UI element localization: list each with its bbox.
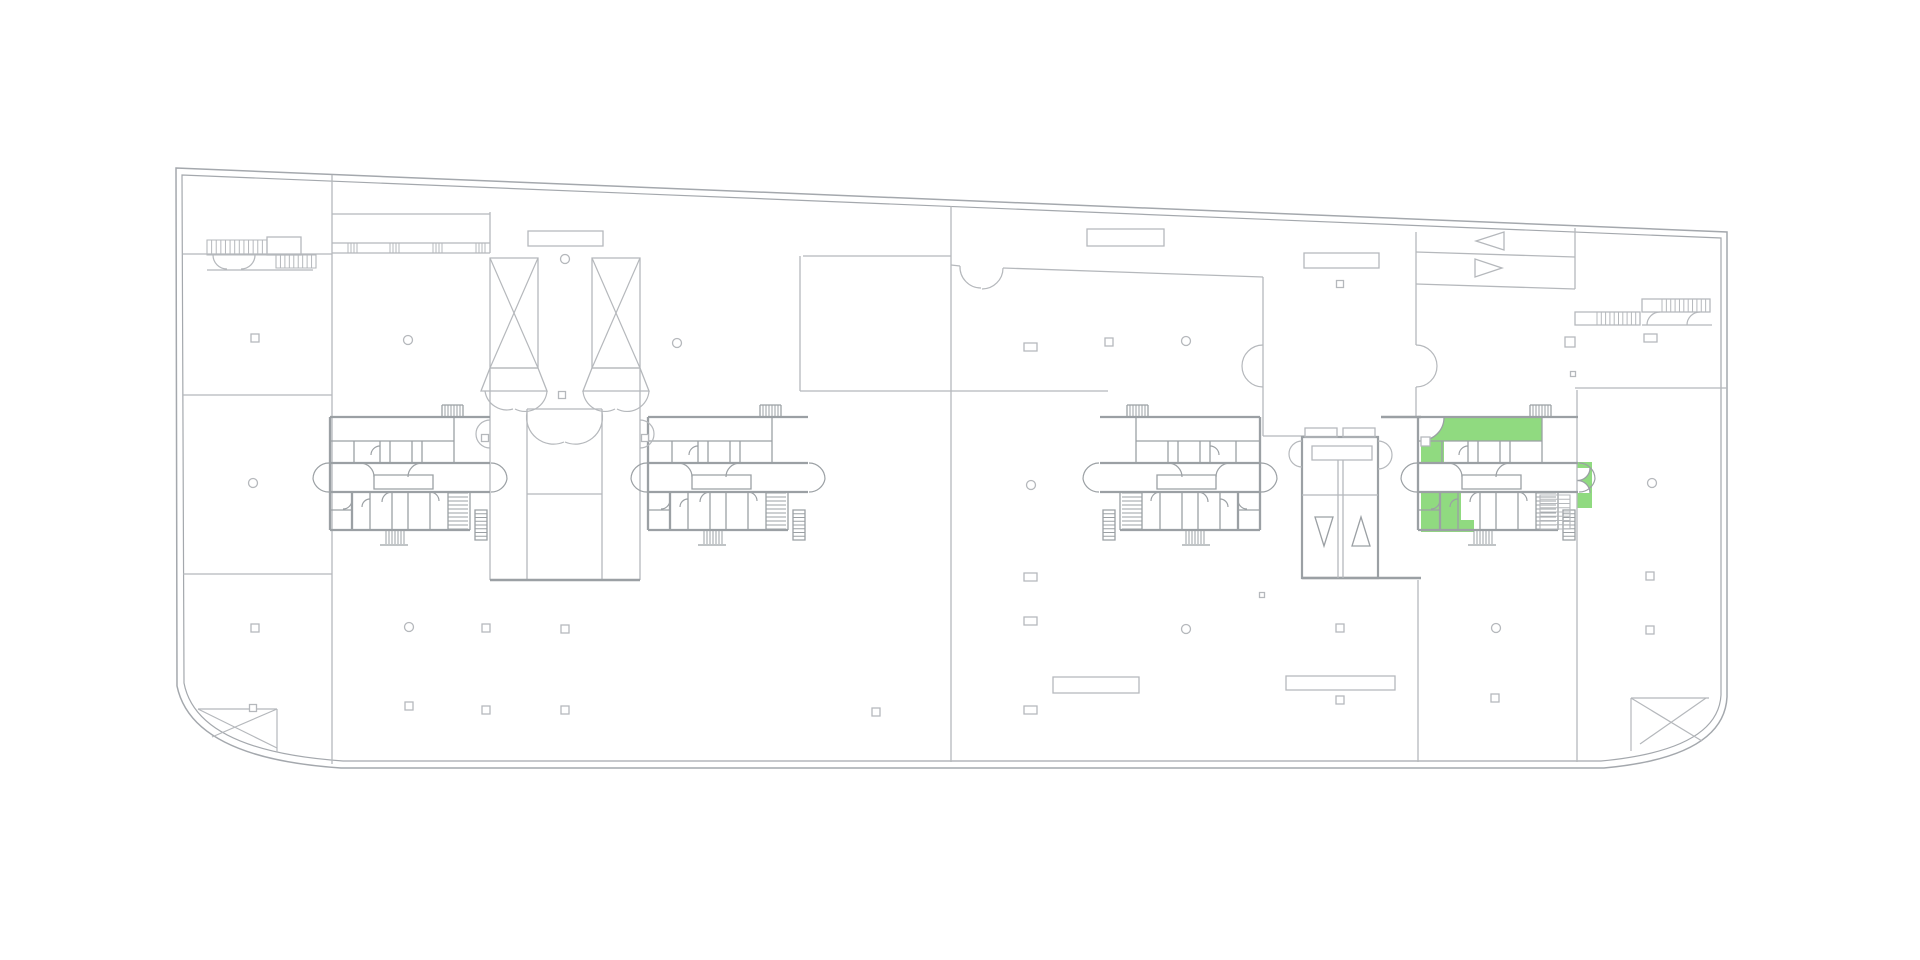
x-braced-shafts [481, 258, 649, 391]
door-swing-arcs [213, 255, 1700, 493]
apartment-core-3 [1083, 405, 1277, 545]
elevator-core [1302, 428, 1378, 578]
apartment-core-2 [631, 405, 825, 545]
corner-brace-details [198, 698, 1709, 752]
partition-walls [183, 175, 1727, 764]
floor-plan-viewer [0, 0, 1920, 960]
structural-columns [249, 255, 1658, 717]
floor-plan-svg [0, 0, 1920, 960]
